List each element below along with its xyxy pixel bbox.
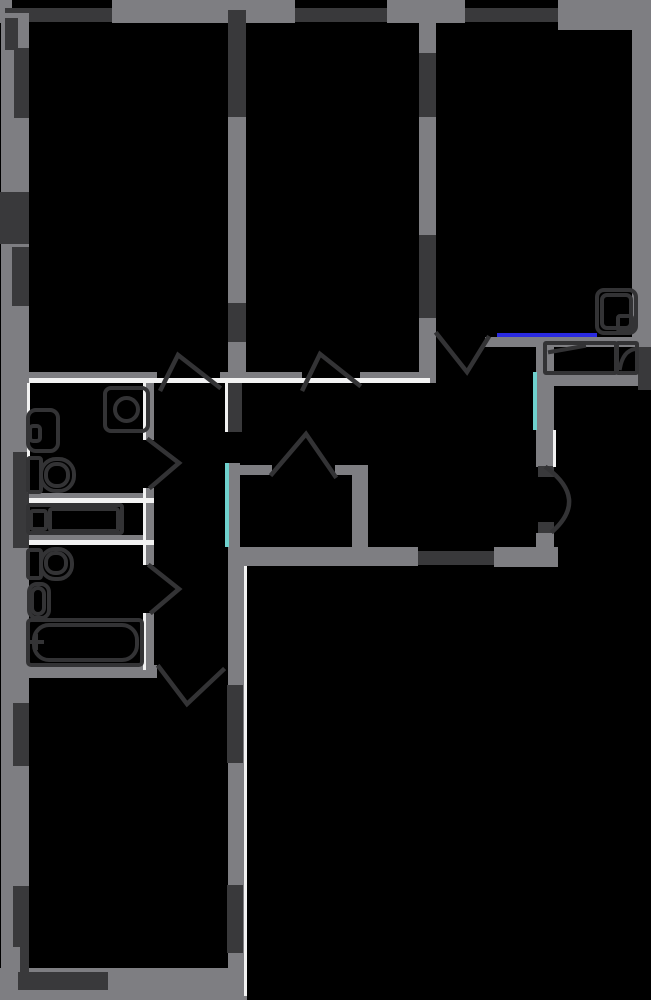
washbasin-2: [29, 584, 49, 618]
wall-edge-line: [143, 383, 146, 440]
corner-washbasin: [597, 290, 636, 333]
closet-right-wall: [352, 465, 368, 547]
door-swing-bathroom-1: [149, 440, 179, 487]
counter-front-face: [545, 372, 638, 386]
kitchen-door-jamb: [538, 466, 554, 477]
kitchen-counter: [545, 343, 616, 373]
top-wall-segment: [387, 0, 465, 23]
kitchen-bottom-wall: [494, 547, 558, 567]
threshold-line: [29, 378, 430, 383]
bathtub: [28, 620, 142, 665]
bathtub-shape: [28, 620, 142, 665]
interior-wall-2-segment: [419, 23, 436, 53]
toilet-2-shape: [41, 549, 72, 579]
interior-wall-2-segment: [419, 117, 436, 235]
bathroom-right-wall: [146, 383, 154, 440]
kitchen-door-jamb: [538, 522, 554, 533]
vanity-counter-shape: [28, 505, 122, 533]
glass-partition-line: [533, 372, 537, 430]
bathroom-bottom-wall: [29, 665, 157, 678]
toilet-2: [28, 549, 72, 579]
washbasin-1-shape: [28, 410, 58, 451]
washing-machine-shape: [115, 398, 138, 421]
bottom-room-right-window: [227, 685, 243, 763]
washbasin-2-shape: [32, 588, 44, 614]
door-swing-closet: [272, 434, 335, 476]
corner-washbasin-shape: [602, 295, 631, 328]
toilet-2-shape: [46, 553, 66, 573]
left-window: [14, 48, 29, 118]
washbasin-1: [28, 410, 58, 451]
interior-wall-1-segment: [228, 303, 246, 342]
kitchen-top-wall: [485, 337, 651, 347]
toilet-1-shape: [46, 464, 68, 486]
door-swing-middle-room: [303, 354, 359, 389]
hall-wall-stub: [228, 383, 242, 432]
kitchen-bottom-wall-dark: [418, 551, 494, 565]
wall-edge-line: [143, 613, 146, 670]
vanity-counter-shape: [31, 511, 46, 529]
interior-wall-2-segment: [419, 53, 436, 117]
wall-edge-line: [225, 383, 228, 432]
toilet-1-shape: [41, 459, 74, 491]
door-swing-bathroom-2: [150, 566, 179, 612]
window-glass-line: [497, 333, 597, 337]
bottom-room-right-window: [227, 885, 243, 953]
door-swing-bottom-room: [159, 667, 223, 704]
washbasin-2-shape: [29, 584, 49, 618]
kitchen-sink-shape: [617, 343, 637, 373]
kitchen-left-wall: [536, 347, 554, 467]
corner-washbasin-shape: [618, 316, 632, 331]
bathtub-shape: [34, 625, 137, 660]
right-wall-dark-segment: [638, 347, 651, 390]
wall-edge-line: [27, 383, 30, 493]
interior-wall-2-segment: [419, 318, 436, 383]
closet-left-wall: [228, 463, 240, 547]
kitchen-sink-shape: [620, 349, 635, 368]
wall-edge-line: [553, 430, 556, 467]
bottom-corner-frame: [20, 946, 29, 974]
washing-machine: [105, 388, 148, 431]
wall-edge-line: [244, 566, 247, 996]
door-swing-top-left-room: [161, 355, 219, 389]
top-window: [465, 8, 558, 22]
kitchen-sink: [617, 343, 637, 373]
toilet-2-shape: [28, 550, 41, 578]
wall-edge-line: [29, 540, 154, 545]
corner-washbasin-shape: [597, 290, 636, 333]
left-window: [5, 18, 18, 50]
right-wall: [632, 18, 651, 347]
interior-wall-1-segment: [228, 10, 246, 117]
washbasin-1-shape: [30, 426, 40, 441]
door-swing-top-right-room: [437, 334, 488, 372]
left-window: [12, 247, 29, 306]
interior-wall-2-segment: [419, 235, 436, 318]
washing-machine-shape: [105, 388, 148, 431]
interior-wall-1-segment: [228, 117, 246, 303]
glass-partition-line: [225, 463, 229, 547]
vanity-counter: [28, 505, 122, 533]
left-window: [0, 192, 29, 244]
wall-edge-line: [29, 498, 154, 503]
floor-plan: [0, 0, 651, 1000]
toilet-1: [28, 458, 74, 492]
closet-top-wall: [240, 465, 272, 475]
bottom-window: [18, 972, 108, 990]
top-window: [295, 8, 387, 22]
left-window: [13, 703, 29, 766]
kitchen-counter-shape: [545, 343, 616, 373]
top-wall-segment: [112, 0, 295, 23]
bathroom-right-wall: [146, 613, 154, 670]
kitchen-bottom-wall: [228, 547, 418, 566]
vanity-counter-shape: [50, 509, 118, 531]
left-window: [13, 886, 29, 947]
